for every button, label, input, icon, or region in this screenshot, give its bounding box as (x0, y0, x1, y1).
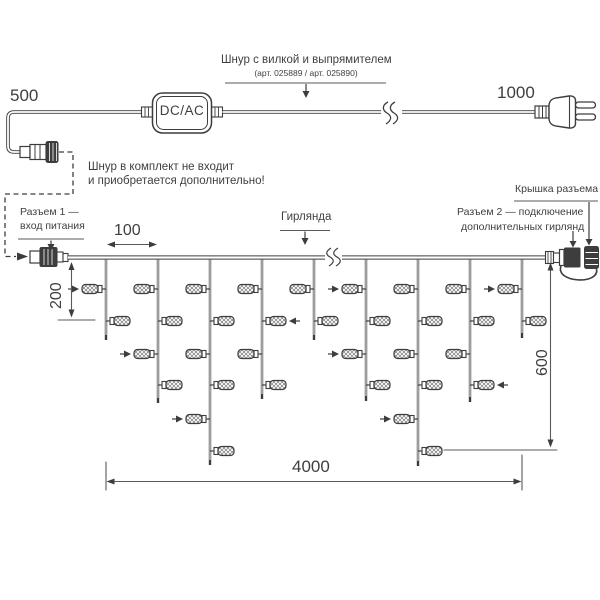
lamp-bulb (134, 350, 150, 359)
lamp-arrow (72, 286, 79, 293)
dimensions-group (58, 242, 557, 491)
cord-break (381, 99, 402, 125)
lamp-base (150, 351, 154, 358)
dim-100-label: 100 (114, 222, 141, 240)
lamp-arrow (332, 286, 339, 293)
garland-drop (484, 260, 546, 339)
lamp-arrow (124, 351, 131, 358)
lamp-bulb (238, 350, 254, 359)
cord-label-arrow (303, 91, 310, 98)
lamp-bulb (322, 317, 338, 326)
lamp-base (150, 286, 154, 293)
plug-pin (576, 114, 596, 120)
lamp-bulb (114, 317, 130, 326)
dcac-label: DC/AC (152, 104, 212, 119)
connector2-label-line2: дополнительных гирлянд (461, 222, 584, 234)
lamp-bulb (342, 350, 358, 359)
lamp-arrow (332, 351, 339, 358)
lamp-bulb (218, 317, 234, 326)
lamp-bulb (446, 285, 462, 294)
garland-drop (380, 260, 442, 467)
lamp-base (254, 286, 258, 293)
garland-label: Гирлянда (281, 211, 331, 224)
lamp-bulb (394, 285, 410, 294)
lamp-bulb (218, 381, 234, 390)
connector-cap (584, 246, 599, 269)
lamp-arrow (497, 382, 504, 389)
not-included-dashed-line (5, 152, 73, 257)
connector2 (546, 246, 600, 280)
lamp-bulb (166, 317, 182, 326)
lamp-bulb (530, 317, 546, 326)
dim-200-label: 200 (48, 282, 66, 309)
lamp-bulb (186, 415, 202, 424)
lamp-bulb (82, 285, 98, 294)
lamp-bulb (270, 317, 286, 326)
connector1-label-line1: Разъем 1 — (20, 207, 79, 219)
cord-title-label: Шнур с вилкой и выпрямителем (221, 54, 391, 67)
lamp-bulb (238, 285, 254, 294)
lamp-bulb (426, 447, 442, 456)
note-line1: Шнур в комплект не входит (88, 161, 234, 174)
lamp-bulb (394, 350, 410, 359)
lamp-arrow (488, 286, 495, 293)
dashed-arrow (17, 253, 28, 261)
lamp-bulb (186, 285, 202, 294)
garland-drop (120, 260, 182, 404)
lamp-bulb (374, 317, 390, 326)
lamp-base (202, 416, 206, 423)
dim-500-label: 500 (10, 87, 38, 106)
lamp-bulb (342, 285, 358, 294)
lamp-bulb (290, 285, 306, 294)
dim-1000-label: 1000 (497, 84, 535, 103)
dim-600-label: 600 (534, 349, 552, 376)
garland-group (18, 201, 599, 466)
lamp-arrow (176, 416, 183, 423)
note-line2: и приобретается дополнительно! (88, 175, 265, 188)
connector1 (30, 248, 68, 267)
cap-label-arrow (586, 239, 593, 246)
garland-label-arrow (302, 238, 309, 245)
lamp-arrow (289, 318, 296, 325)
lamp-bulb (498, 285, 514, 294)
garland-drop (328, 260, 390, 402)
lamp-bulb (446, 350, 462, 359)
garland-drop (68, 260, 130, 341)
cord-end-connector (20, 142, 58, 163)
lamp-bulb (134, 285, 150, 294)
connector2-label-line1: Разъем 2 — подключение (457, 207, 583, 219)
lamp-bulb (478, 317, 494, 326)
diagram-canvas: 500 Шнур с вилкой и выпрямителем (арт. 0… (0, 0, 600, 600)
plug-pin (576, 102, 596, 108)
connector1-label-line2: вход питания (20, 221, 85, 233)
lamp-base (202, 351, 206, 358)
lamp-base (254, 351, 258, 358)
garland-drop (446, 260, 508, 403)
lamp-bulb (166, 381, 182, 390)
dim-4000-label: 4000 (292, 458, 330, 477)
lamp-bulb (426, 317, 442, 326)
drops-layer (68, 260, 546, 467)
connector2-label-arrow (570, 241, 577, 248)
lamp-bulb (270, 381, 286, 390)
lamp-bulb (186, 350, 202, 359)
lamp-bulb (426, 381, 442, 390)
garland-drop (238, 260, 300, 400)
mains-plug (535, 96, 596, 128)
lamp-bulb (478, 381, 494, 390)
garland-drop (172, 260, 234, 466)
lamp-bulb (374, 381, 390, 390)
lamp-bulb (394, 415, 410, 424)
lamp-arrow (384, 416, 391, 423)
cord-articles-label: (арт. 025889 / арт. 025890) (221, 69, 391, 78)
lamp-base (202, 286, 206, 293)
garland-drop (290, 260, 338, 341)
cap-label: Крышка разъема (515, 184, 598, 196)
lamp-bulb (218, 447, 234, 456)
